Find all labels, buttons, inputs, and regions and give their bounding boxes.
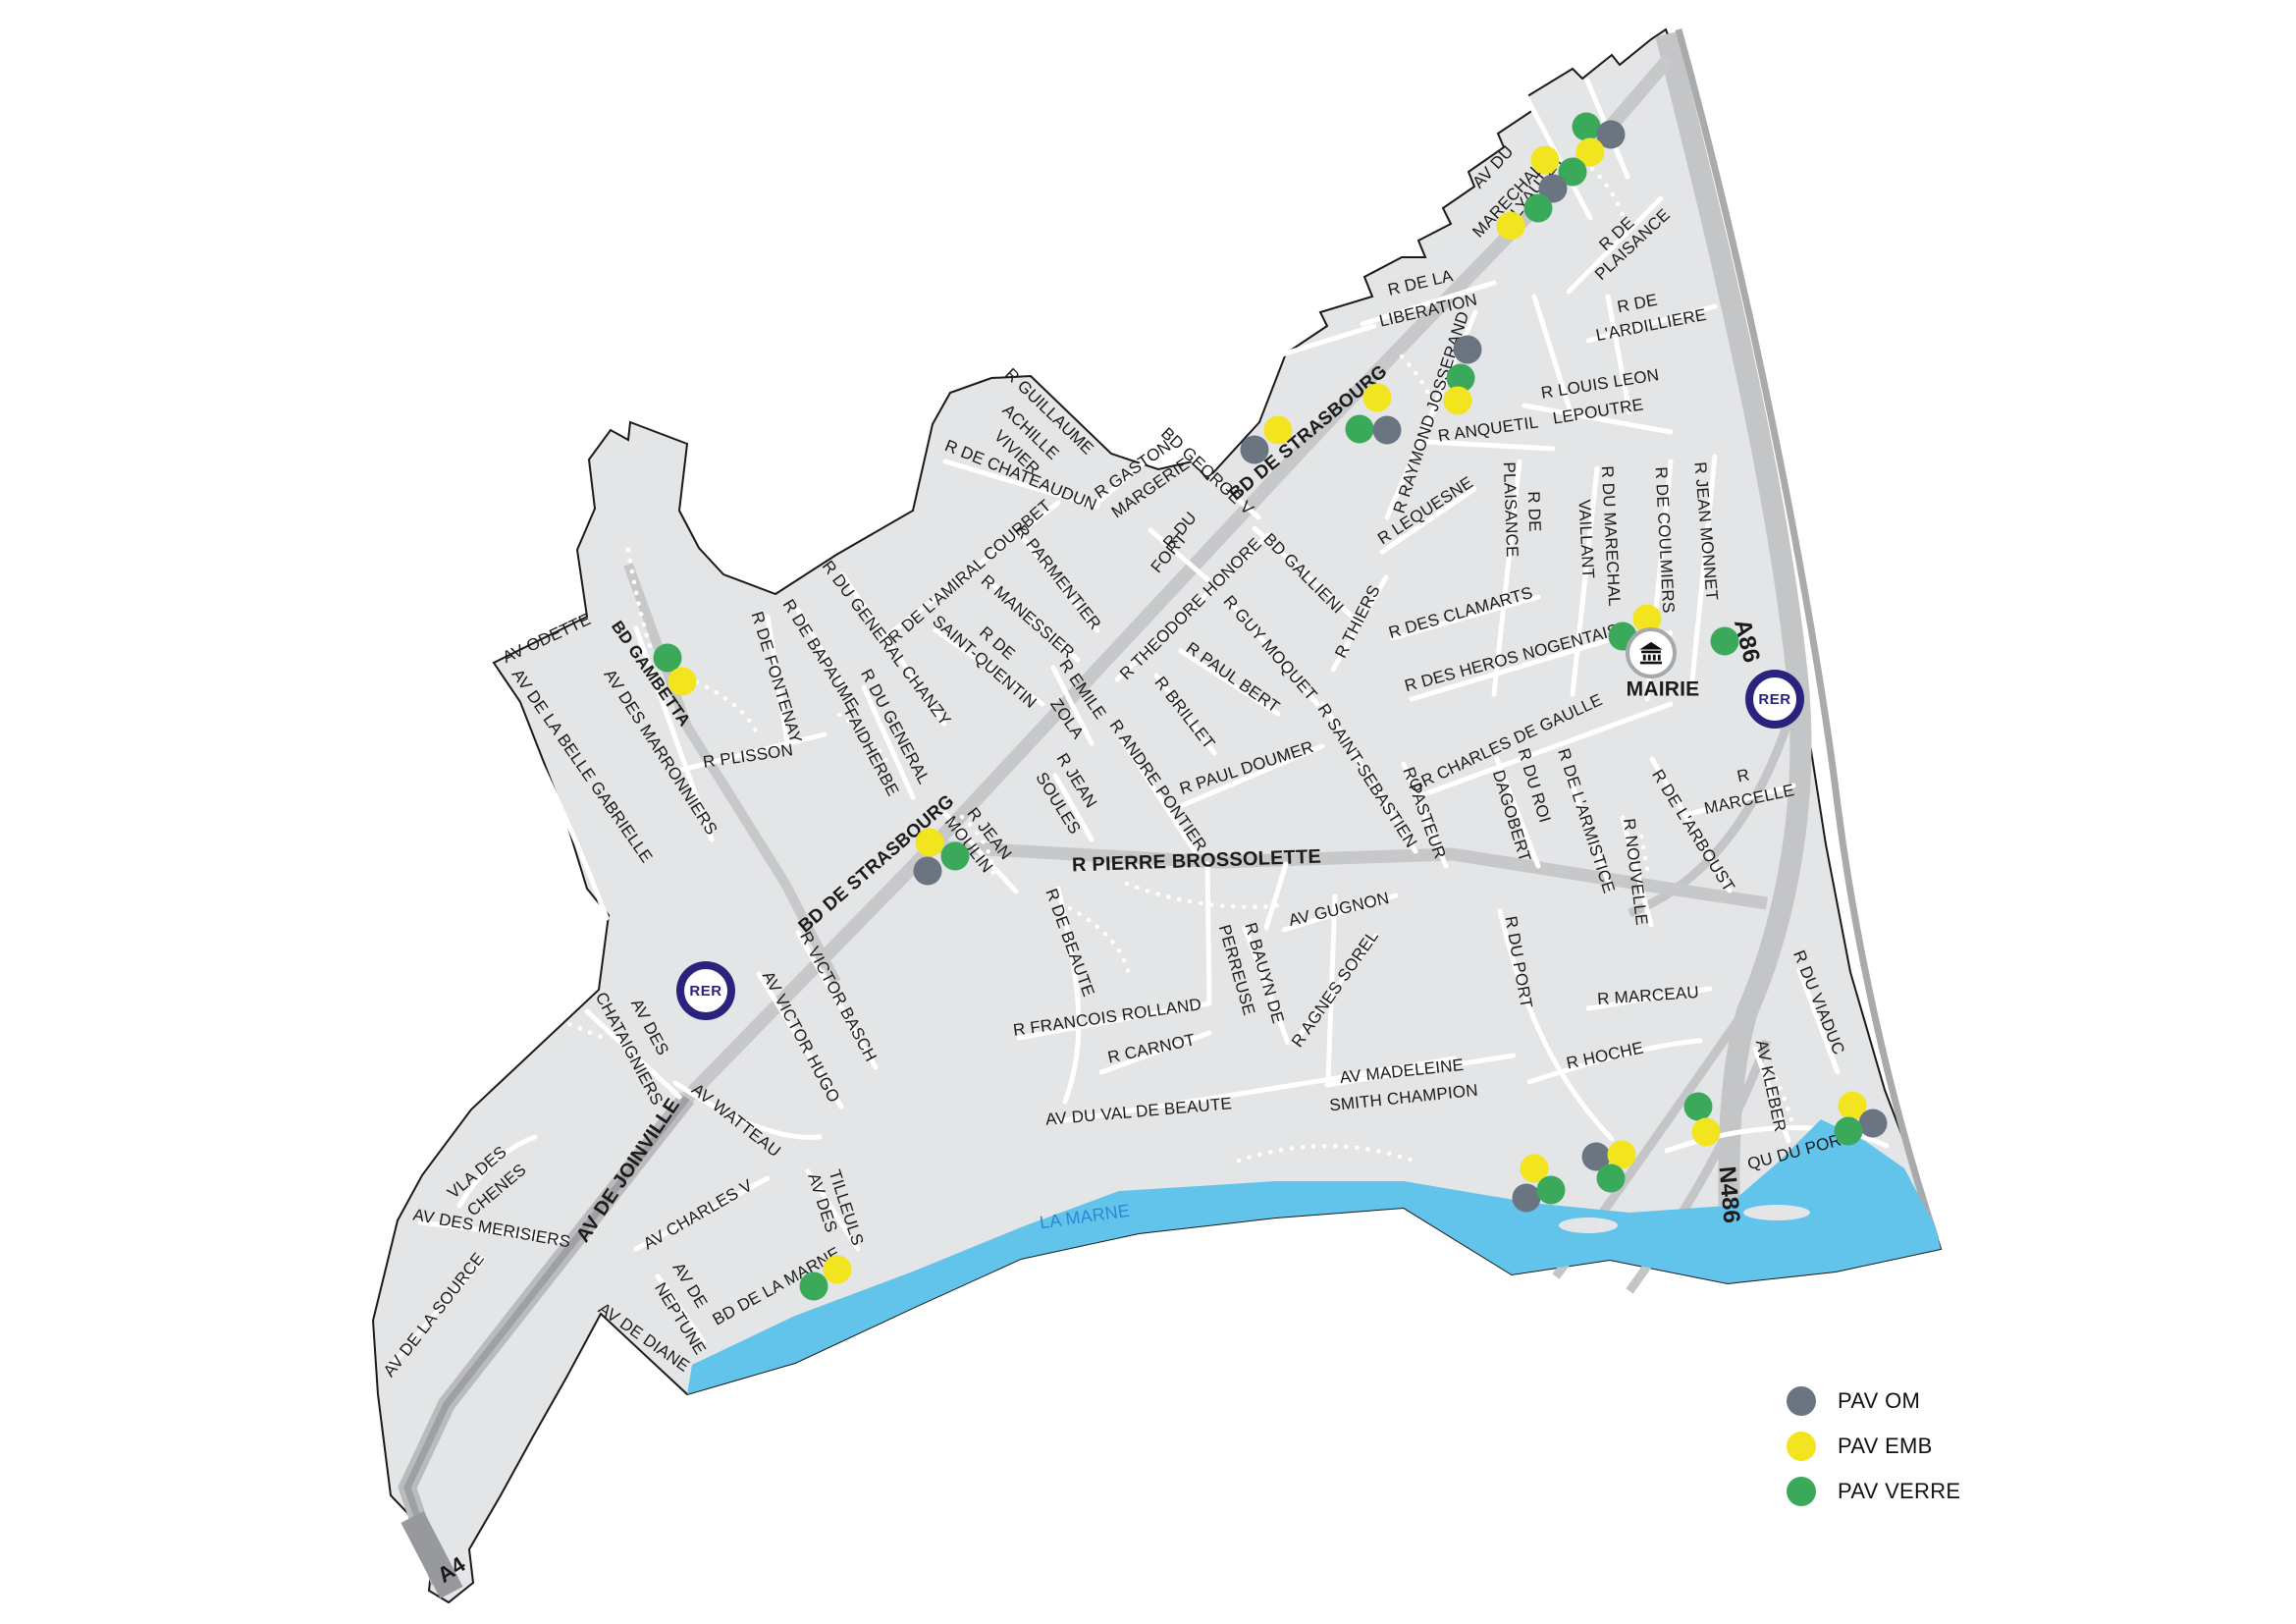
town-hall-glyph [1637,639,1665,667]
pav-verre-marker [1711,627,1739,656]
legend-label: PAV OM [1838,1388,1920,1414]
pav-verre-marker [941,842,970,871]
legend-item-verre: PAV VERRE [1787,1477,1960,1506]
pav-emb-marker [824,1256,852,1284]
rer-label: RER [1758,691,1790,708]
pav-verre-marker [1597,1164,1626,1193]
street-label: N486 [1715,1165,1743,1224]
legend: PAV OMPAV EMBPAV VERRE [1787,1386,1960,1522]
pav-verre-marker [1346,415,1374,444]
pav-emb-marker [1444,387,1472,415]
mairie-town-hall-icon [1626,627,1677,678]
river-island [1743,1205,1810,1220]
map-page: AV ODETTEAV DE LA BELLE GABRIELLEAV DES … [0,0,2296,1624]
commune-map-svg [0,0,2296,1624]
pav-emb-marker [1531,146,1560,175]
pav-om-marker [914,857,942,886]
legend-verre-dot-icon [1787,1477,1816,1506]
pav-verre-marker [1684,1093,1713,1121]
pav-emb-marker [1363,384,1392,412]
pav-om-marker [1241,436,1269,464]
street-label: MAIRIE [1627,679,1700,700]
pav-om-marker [1373,416,1402,445]
rer-station-icon: RER [1748,673,1801,726]
rer-station-icon: RER [679,964,732,1017]
legend-label: PAV EMB [1838,1434,1933,1459]
pav-emb-marker [1264,416,1293,445]
pav-om-marker [1454,336,1482,364]
street-label: VAILLANT [1575,499,1596,578]
pav-emb-marker [668,668,697,696]
pav-emb-marker [1692,1118,1721,1147]
pav-verre-marker [800,1272,828,1301]
pav-verre-marker [1524,194,1553,223]
pav-emb-marker [916,829,944,857]
legend-item-emb: PAV EMB [1787,1432,1960,1461]
street-label: PLAISANCE [1501,461,1521,558]
pav-verre-marker [1835,1117,1863,1146]
pav-emb-marker [1497,212,1525,241]
river-island [1559,1218,1618,1233]
street-label: R DE [1525,491,1543,532]
legend-om-dot-icon [1787,1386,1816,1416]
legend-emb-dot-icon [1787,1432,1816,1461]
rer-label: RER [689,983,721,1000]
pav-om-marker [1859,1110,1888,1138]
legend-label: PAV VERRE [1838,1479,1960,1504]
pav-verre-marker [1537,1176,1566,1205]
legend-item-om: PAV OM [1787,1386,1960,1416]
